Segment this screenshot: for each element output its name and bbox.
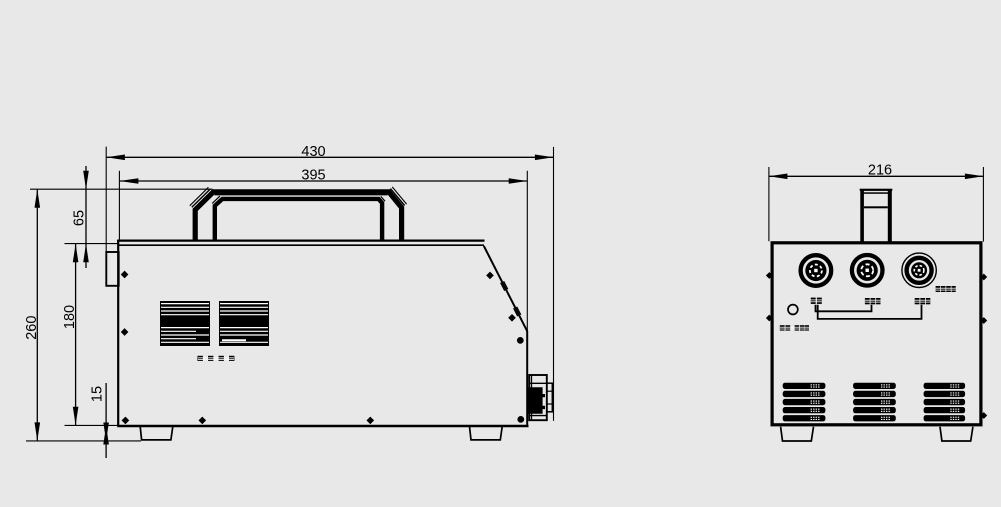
svg-text:430: 430 bbox=[301, 144, 325, 160]
svg-text:216: 216 bbox=[868, 163, 892, 179]
svg-text:395: 395 bbox=[301, 168, 325, 184]
svg-text:180: 180 bbox=[62, 305, 78, 329]
svg-text:15: 15 bbox=[89, 386, 105, 402]
svg-text:260: 260 bbox=[24, 316, 40, 340]
svg-text:65: 65 bbox=[71, 210, 87, 226]
